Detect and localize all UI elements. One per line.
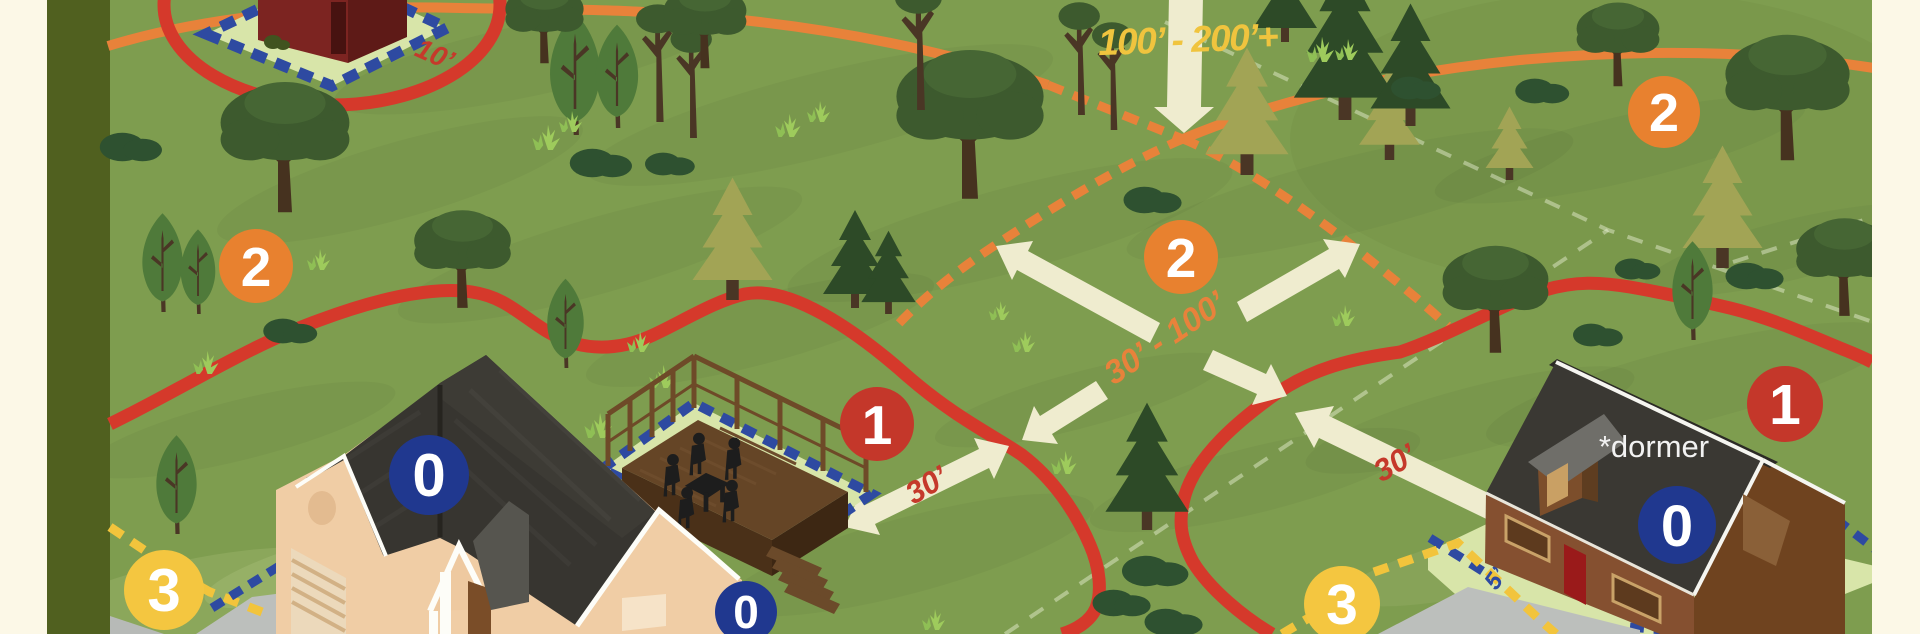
svg-text:2: 2: [1649, 83, 1679, 143]
svg-text:0: 0: [412, 442, 445, 509]
svg-text:2: 2: [1166, 227, 1197, 289]
svg-text:2: 2: [241, 236, 272, 298]
svg-text:3: 3: [147, 557, 180, 624]
svg-text:0: 0: [733, 586, 759, 634]
svg-text:3: 3: [1326, 573, 1358, 634]
svg-text:0: 0: [1661, 494, 1693, 559]
svg-text:100’ - 200’+: 100’ - 200’+: [1097, 16, 1278, 63]
svg-text:1: 1: [862, 394, 893, 456]
svg-text:*dormer: *dormer: [1599, 429, 1709, 464]
svg-text:1: 1: [1769, 373, 1801, 437]
